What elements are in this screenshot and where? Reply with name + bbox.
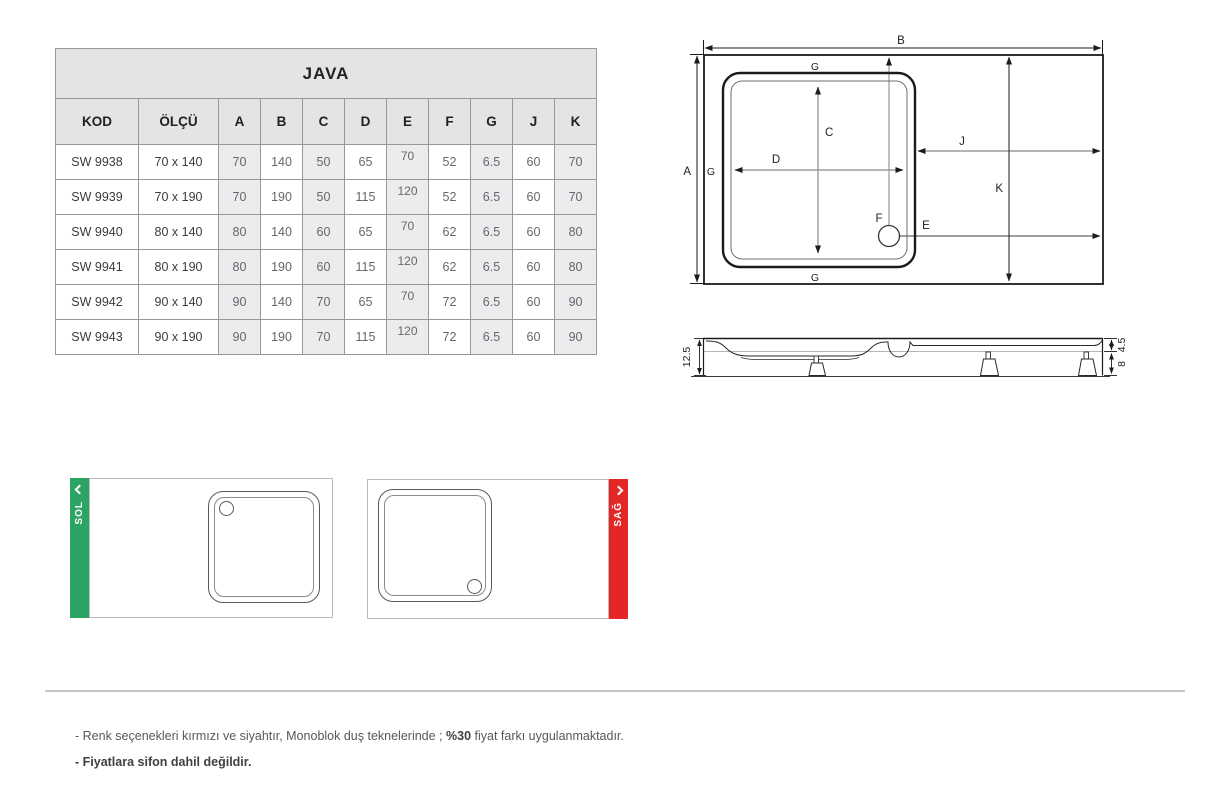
table-cell: 70 [387,215,429,250]
table-row: SW 994080 x 14080140606570626.56080 [56,215,597,250]
table-cell: 60 [513,320,555,355]
table-header-row: KODÖLÇÜABCDEFGJK [56,99,597,145]
table-cell: 70 [555,180,597,215]
column-header: E [387,99,429,145]
dim-label-g-top: G [811,61,819,73]
table-cell: 70 [303,320,345,355]
table-cell: SW 9942 [56,285,139,320]
tray-top-view-right-variant [378,489,492,602]
column-header: ÖLÇÜ [139,99,219,145]
table-cell: 90 [555,285,597,320]
dim-label-g-bottom: G [811,272,819,284]
table-cell: 60 [513,250,555,285]
table-cell: 70 [303,285,345,320]
table-cell: 65 [345,145,387,180]
table-cell: 60 [513,285,555,320]
table-cell: 6.5 [471,215,513,250]
table-cell: 120 [387,180,429,215]
table-cell: 6.5 [471,180,513,215]
dim-label-bottom-height: 8 [1116,361,1128,367]
dim-label-a: A [683,166,691,178]
catalog-page: JAVA KODÖLÇÜABCDEFGJK SW 993870 x 140701… [0,0,1230,791]
dim-label-total-height: 12.5 [681,347,693,368]
table-cell: 70 [219,145,261,180]
column-header: K [555,99,597,145]
table-cell: 190 [261,250,303,285]
table-cell: SW 9938 [56,145,139,180]
table-cell: 140 [261,285,303,320]
table-cell: 115 [345,180,387,215]
table-cell: 70 [387,285,429,320]
footer-note-2: - Fiyatlara sifon dahil değildir. [75,755,251,769]
table-cell: 60 [303,215,345,250]
dim-label-e: E [922,220,930,232]
tray-foot [809,363,826,376]
table-cell: 80 [555,215,597,250]
drain-circle [467,579,482,594]
table-cell: 90 x 140 [139,285,219,320]
table-cell: 6.5 [471,145,513,180]
sag-direction-bar[interactable]: SAĞ [609,479,628,619]
dim-label-f: F [875,213,882,225]
chevron-left-icon [75,485,85,495]
table-row: SW 994180 x 1908019060115120626.56080 [56,250,597,285]
table-cell: SW 9939 [56,180,139,215]
dim-label-b: B [897,35,905,47]
sol-label: SOL [74,501,85,525]
column-header: F [429,99,471,145]
table-cell: 52 [429,145,471,180]
table-cell: 90 [219,320,261,355]
basin-profile [706,341,1102,358]
table-cell: 70 [387,145,429,180]
dim-label-d: D [772,154,780,166]
table-title-row: JAVA [56,49,597,99]
table-cell: 115 [345,320,387,355]
sol-direction-bar[interactable]: SOL [70,478,89,618]
side-view-diagram: 12.5 4.5 8 [670,300,1130,400]
table-cell: 65 [345,285,387,320]
table-cell: 120 [387,320,429,355]
table-cell: 65 [345,215,387,250]
table-cell: 70 [219,180,261,215]
table-cell: SW 9943 [56,320,139,355]
table-row: SW 994390 x 1909019070115120726.56090 [56,320,597,355]
table-cell: 50 [303,145,345,180]
tray-foot [981,359,999,376]
tray-foot [1079,359,1097,376]
table-cell: 70 x 190 [139,180,219,215]
table-cell: 72 [429,320,471,355]
table-cell: 6.5 [471,285,513,320]
table-cell: 80 [555,250,597,285]
table-cell: SW 9940 [56,215,139,250]
left-variant-image [89,478,333,618]
right-variant-image [367,479,609,619]
product-title: JAVA [56,49,597,99]
table-cell: 120 [387,250,429,285]
spec-table: JAVA KODÖLÇÜABCDEFGJK SW 993870 x 140701… [55,48,597,355]
column-header: J [513,99,555,145]
table-cell: 70 [555,145,597,180]
drain-circle [879,226,900,247]
variant-left-thumbnail: SOL [70,478,333,618]
table-cell: 72 [429,285,471,320]
table-cell: 60 [513,145,555,180]
tray-top-view-left-variant [208,491,320,603]
spec-table-container: JAVA KODÖLÇÜABCDEFGJK SW 993870 x 140701… [55,48,597,355]
dim-label-k: K [995,183,1003,195]
table-cell: 70 x 140 [139,145,219,180]
dim-label-g-left: G [707,166,715,178]
table-row: SW 994290 x 14090140706570726.56090 [56,285,597,320]
column-header: KOD [56,99,139,145]
footer-divider [45,690,1185,692]
column-header: A [219,99,261,145]
table-cell: 6.5 [471,320,513,355]
table-cell: 115 [345,250,387,285]
table-cell: 60 [513,180,555,215]
footer-note-1: - Renk seçenekleri kırmızı ve siyahtır, … [75,729,624,743]
drain-circle [219,501,234,516]
table-cell: 62 [429,215,471,250]
table-cell: 62 [429,250,471,285]
table-cell: 90 [219,285,261,320]
column-header: C [303,99,345,145]
column-header: D [345,99,387,145]
table-cell: 80 [219,215,261,250]
table-cell: SW 9941 [56,250,139,285]
table-row: SW 993870 x 14070140506570526.56070 [56,145,597,180]
variant-right-thumbnail: SAĞ [367,479,628,619]
table-cell: 80 x 190 [139,250,219,285]
table-cell: 80 [219,250,261,285]
table-cell: 140 [261,215,303,250]
table-cell: 90 [555,320,597,355]
table-cell: 50 [303,180,345,215]
table-cell: 6.5 [471,250,513,285]
chevron-right-icon [614,486,624,496]
table-cell: 80 x 140 [139,215,219,250]
table-cell: 190 [261,320,303,355]
table-cell: 140 [261,145,303,180]
top-view-diagram: B A C D E F J K G G G [670,20,1130,300]
sag-label: SAĞ [613,502,624,527]
table-cell: 52 [429,180,471,215]
column-header: G [471,99,513,145]
column-header: B [261,99,303,145]
table-cell: 190 [261,180,303,215]
dim-label-j: J [959,136,965,148]
table-cell: 90 x 190 [139,320,219,355]
dim-label-c: C [825,127,833,139]
table-row: SW 993970 x 1907019050115120526.56070 [56,180,597,215]
table-cell: 60 [513,215,555,250]
dim-label-top-height: 4.5 [1116,338,1128,353]
table-cell: 60 [303,250,345,285]
price-difference-value: %30 [446,729,471,743]
